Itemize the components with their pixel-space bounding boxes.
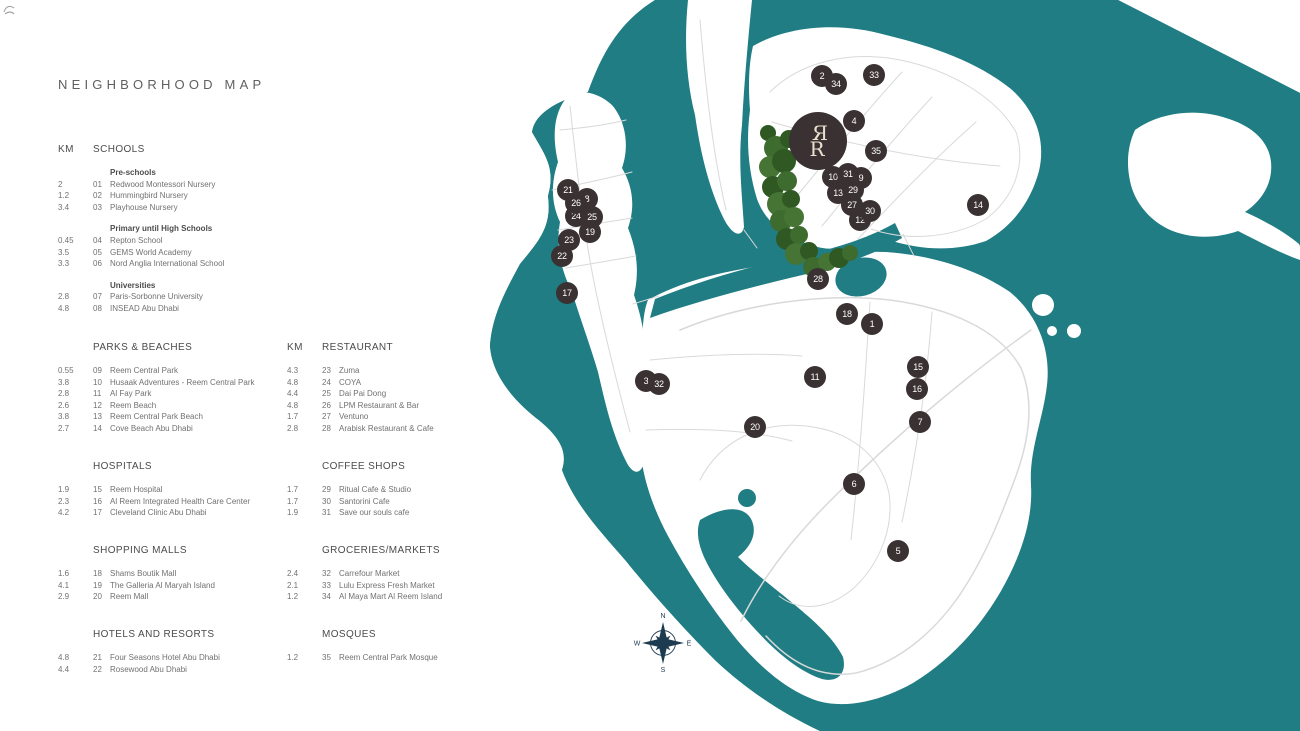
compass-star	[642, 622, 684, 664]
map-marker-14: 14	[967, 194, 989, 216]
lagoon-knob	[738, 489, 756, 507]
legend-item: 4.425Dai Pai Dong	[287, 388, 522, 400]
km-column-label	[58, 461, 93, 473]
legend-item: 1.729Ritual Cafe & Studio	[287, 484, 522, 496]
item-name: Al Reem Integrated Health Care Center	[110, 496, 293, 508]
item-km: 4.8	[287, 377, 322, 389]
compass-w: W	[634, 641, 641, 648]
section-header: HOSPITALS	[58, 461, 293, 473]
item-num: 26	[322, 400, 339, 412]
item-num: 24	[322, 377, 339, 389]
km-column-label: KM	[287, 342, 322, 354]
section-header: MOSQUES	[287, 629, 522, 641]
item-km: 4.3	[287, 365, 322, 377]
km-column-label	[58, 629, 93, 641]
item-name: Husaak Adventures - Reem Central Park	[110, 377, 293, 389]
item-num: 32	[322, 568, 339, 580]
map-marker-17: 17	[556, 282, 578, 304]
item-km: 3.8	[58, 411, 93, 423]
item-name: Cove Beach Abu Dhabi	[110, 423, 293, 435]
item-name: Save our souls cafe	[339, 507, 522, 519]
islet-2	[1067, 324, 1081, 338]
item-km: 1.7	[287, 496, 322, 508]
item-name: Al Maya Mart Al Reem Island	[339, 591, 522, 603]
item-num: 33	[322, 580, 339, 592]
project-logo: Я R	[789, 112, 847, 170]
legend-item: 4.826LPM Restaurant & Bar	[287, 400, 522, 412]
legend-section-hotels-and-resorts: HOTELS AND RESORTS4.821Four Seasons Hote…	[58, 629, 293, 675]
legend-group: 1.235Reem Central Park Mosque	[287, 652, 522, 664]
item-km: 1.2	[58, 190, 93, 202]
item-num: 35	[322, 652, 339, 664]
map-marker-31: 31	[837, 163, 859, 185]
item-num: 19	[93, 580, 110, 592]
legend-section-parks-beaches: PARKS & BEACHES0.5509Reem Central Park3.…	[58, 342, 293, 435]
item-name: Lulu Express Fresh Market	[339, 580, 522, 592]
legend-group: 1.618Shams Boutik Mall4.119The Galleria …	[58, 568, 293, 603]
item-name: Arabisk Restaurant & Cafe	[339, 423, 522, 435]
section-header: PARKS & BEACHES	[58, 342, 293, 354]
item-num: 05	[93, 247, 110, 259]
legend-item: 2.807Paris-Sorbonne University	[58, 291, 293, 303]
item-num: 09	[93, 365, 110, 377]
item-name: The Galleria Al Maryah Island	[110, 580, 293, 592]
item-name: GEMS World Academy	[110, 247, 293, 259]
item-name: Shams Boutik Mall	[110, 568, 293, 580]
item-num: 08	[93, 303, 110, 315]
item-name: Dai Pai Dong	[339, 388, 522, 400]
item-name: INSEAD Abu Dhabi	[110, 303, 293, 315]
map-marker-5: 5	[887, 540, 909, 562]
item-km: 4.2	[58, 507, 93, 519]
legend-subgroup-label: Universities	[110, 280, 293, 292]
section-title: HOTELS AND RESORTS	[93, 629, 293, 641]
map-marker-4: 4	[843, 110, 865, 132]
legend-item: 2.133Lulu Express Fresh Market	[287, 580, 522, 592]
legend-item: 4.808INSEAD Abu Dhabi	[58, 303, 293, 315]
section-title: RESTAURANT	[322, 342, 522, 354]
corner-mark	[2, 2, 16, 16]
item-num: 02	[93, 190, 110, 202]
legend-item: 4.824COYA	[287, 377, 522, 389]
map-marker-7: 7	[909, 411, 931, 433]
item-name: Reem Central Park Mosque	[339, 652, 522, 664]
item-km: 4.8	[287, 400, 322, 412]
legend-item: 1.727Ventuno	[287, 411, 522, 423]
legend-section-restaurant: KMRESTAURANT4.323Zuma4.824COYA4.425Dai P…	[287, 342, 522, 435]
item-num: 03	[93, 202, 110, 214]
km-column-label	[287, 629, 322, 641]
item-name: Hummingbird Nursery	[110, 190, 293, 202]
item-name: Al Fay Park	[110, 388, 293, 400]
item-num: 06	[93, 258, 110, 270]
item-name: Nord Anglia International School	[110, 258, 293, 270]
item-name: Repton School	[110, 235, 293, 247]
item-num: 01	[93, 179, 110, 191]
item-num: 34	[322, 591, 339, 603]
map-marker-6: 6	[843, 473, 865, 495]
section-title: SCHOOLS	[93, 144, 293, 156]
legend-item: 201Redwood Montessori Nursery	[58, 179, 293, 191]
item-num: 12	[93, 400, 110, 412]
item-km: 3.5	[58, 247, 93, 259]
map-marker-26: 26	[565, 192, 587, 214]
item-num: 13	[93, 411, 110, 423]
item-km: 4.8	[58, 303, 93, 315]
item-name: LPM Restaurant & Bar	[339, 400, 522, 412]
item-km: 3.3	[58, 258, 93, 270]
section-header: COFFEE SHOPS	[287, 461, 522, 473]
item-num: 27	[322, 411, 339, 423]
map-marker-34: 34	[825, 73, 847, 95]
legend-group: 0.5509Reem Central Park3.810Husaak Adven…	[58, 365, 293, 435]
legend-group: Pre-schools201Redwood Montessori Nursery…	[58, 167, 293, 213]
item-km: 0.45	[58, 235, 93, 247]
map-marker-32: 32	[648, 373, 670, 395]
section-title: PARKS & BEACHES	[93, 342, 293, 354]
legend-item: 3.810Husaak Adventures - Reem Central Pa…	[58, 377, 293, 389]
section-header: KMSCHOOLS	[58, 144, 293, 156]
legend-subgroup-label: Pre-schools	[110, 167, 293, 179]
item-name: Playhouse Nursery	[110, 202, 293, 214]
legend-item: 0.5509Reem Central Park	[58, 365, 293, 377]
item-km: 2.8	[58, 291, 93, 303]
item-km: 2.8	[58, 388, 93, 400]
item-km: 3.4	[58, 202, 93, 214]
item-num: 15	[93, 484, 110, 496]
legend-group: Primary until High Schools0.4504Repton S…	[58, 223, 293, 269]
legend-item: 2.920Reem Mall	[58, 591, 293, 603]
map-marker-28: 28	[807, 268, 829, 290]
compass-rose: N E S W	[631, 611, 695, 675]
page-title: NEIGHBORHOOD MAP	[58, 77, 265, 92]
legend-item: 4.821Four Seasons Hotel Abu Dhabi	[58, 652, 293, 664]
item-km: 1.2	[287, 652, 322, 664]
section-title: COFFEE SHOPS	[322, 461, 522, 473]
item-name: Zuma	[339, 365, 522, 377]
legend-item: 4.323Zuma	[287, 365, 522, 377]
legend-group: 1.915Reem Hospital2.316Al Reem Integrate…	[58, 484, 293, 519]
item-km: 1.9	[287, 507, 322, 519]
item-km: 1.9	[58, 484, 93, 496]
item-name: Santorini Cafe	[339, 496, 522, 508]
item-km: 2.3	[58, 496, 93, 508]
legend-item: 2.714Cove Beach Abu Dhabi	[58, 423, 293, 435]
item-km: 2.4	[287, 568, 322, 580]
legend-item: 1.730Santorini Cafe	[287, 496, 522, 508]
section-header: HOTELS AND RESORTS	[58, 629, 293, 641]
km-column-label: KM	[58, 144, 93, 156]
legend-group: 4.821Four Seasons Hotel Abu Dhabi4.422Ro…	[58, 652, 293, 675]
item-name: Paris-Sorbonne University	[110, 291, 293, 303]
section-title: SHOPPING MALLS	[93, 545, 293, 557]
legend-subgroup-label: Primary until High Schools	[110, 223, 293, 235]
legend-section-schools: KMSCHOOLSPre-schools201Redwood Montessor…	[58, 144, 293, 315]
legend-item: 2.828Arabisk Restaurant & Cafe	[287, 423, 522, 435]
km-column-label	[58, 342, 93, 354]
legend-section-hospitals: HOSPITALS1.915Reem Hospital2.316Al Reem …	[58, 461, 293, 519]
legend-item: 4.217Cleveland Clinic Abu Dhabi	[58, 507, 293, 519]
item-num: 31	[322, 507, 339, 519]
legend-item: 3.505GEMS World Academy	[58, 247, 293, 259]
legend-item: 1.234Al Maya Mart Al Reem Island	[287, 591, 522, 603]
item-name: Four Seasons Hotel Abu Dhabi	[110, 652, 293, 664]
item-km: 1.7	[287, 484, 322, 496]
item-num: 25	[322, 388, 339, 400]
item-num: 20	[93, 591, 110, 603]
item-km: 1.2	[287, 591, 322, 603]
section-header: KMRESTAURANT	[287, 342, 522, 354]
legend-item: 2.316Al Reem Integrated Health Care Cent…	[58, 496, 293, 508]
section-title: HOSPITALS	[93, 461, 293, 473]
legend-item: 1.202Hummingbird Nursery	[58, 190, 293, 202]
item-km: 2.9	[58, 591, 93, 603]
item-name: Cleveland Clinic Abu Dhabi	[110, 507, 293, 519]
legend-item: 1.931Save our souls cafe	[287, 507, 522, 519]
islet-1	[1032, 294, 1054, 316]
islet-3	[1047, 326, 1057, 336]
item-km: 3.8	[58, 377, 93, 389]
item-km: 2	[58, 179, 93, 191]
legend-item: 0.4504Repton School	[58, 235, 293, 247]
item-num: 17	[93, 507, 110, 519]
legend-item: 4.422Rosewood Abu Dhabi	[58, 664, 293, 676]
section-header: GROCERIES/MARKETS	[287, 545, 522, 557]
item-name: Rosewood Abu Dhabi	[110, 664, 293, 676]
legend-item: 2.432Carrefour Market	[287, 568, 522, 580]
compass-s: S	[661, 667, 666, 674]
item-km: 2.6	[58, 400, 93, 412]
item-num: 22	[93, 664, 110, 676]
km-column-label	[58, 545, 93, 557]
item-name: Reem Central Park Beach	[110, 411, 293, 423]
legend-item: 3.403Playhouse Nursery	[58, 202, 293, 214]
legend-group: 2.432Carrefour Market2.133Lulu Express F…	[287, 568, 522, 603]
section-title: GROCERIES/MARKETS	[322, 545, 522, 557]
section-header: SHOPPING MALLS	[58, 545, 293, 557]
item-km: 2.7	[58, 423, 93, 435]
item-km: 4.8	[58, 652, 93, 664]
map-marker-11: 11	[804, 366, 826, 388]
map-marker-35: 35	[865, 140, 887, 162]
legend-group: Universities2.807Paris-Sorbonne Universi…	[58, 280, 293, 315]
map-marker-1: 1	[861, 313, 883, 335]
item-num: 14	[93, 423, 110, 435]
item-num: 28	[322, 423, 339, 435]
item-name: Reem Central Park	[110, 365, 293, 377]
compass-e: E	[687, 641, 692, 648]
map-marker-33: 33	[863, 64, 885, 86]
item-name: Ventuno	[339, 411, 522, 423]
item-km: 4.4	[58, 664, 93, 676]
legend-section-coffee-shops: COFFEE SHOPS1.729Ritual Cafe & Studio1.7…	[287, 461, 522, 519]
legend-item: 3.306Nord Anglia International School	[58, 258, 293, 270]
item-num: 30	[322, 496, 339, 508]
item-name: COYA	[339, 377, 522, 389]
legend-item: 2.811Al Fay Park	[58, 388, 293, 400]
item-name: Ritual Cafe & Studio	[339, 484, 522, 496]
item-name: Reem Beach	[110, 400, 293, 412]
legend-section-shopping-malls: SHOPPING MALLS1.618Shams Boutik Mall4.11…	[58, 545, 293, 603]
legend-section-mosques: MOSQUES1.235Reem Central Park Mosque	[287, 629, 522, 664]
legend-item: 1.915Reem Hospital	[58, 484, 293, 496]
item-num: 23	[322, 365, 339, 377]
logo-monogram-bottom: R	[809, 141, 824, 157]
map-marker-18: 18	[836, 303, 858, 325]
section-title: MOSQUES	[322, 629, 522, 641]
map-marker-16: 16	[906, 378, 928, 400]
map-marker-15: 15	[907, 356, 929, 378]
item-num: 11	[93, 388, 110, 400]
item-num: 16	[93, 496, 110, 508]
legend-item: 1.618Shams Boutik Mall	[58, 568, 293, 580]
legend-item: 1.235Reem Central Park Mosque	[287, 652, 522, 664]
km-column-label	[287, 461, 322, 473]
map-marker-30: 30	[859, 200, 881, 222]
item-num: 07	[93, 291, 110, 303]
map-marker-23: 23	[558, 229, 580, 251]
compass-n: N	[660, 613, 665, 620]
legend-section-groceries-markets: GROCERIES/MARKETS2.432Carrefour Market2.…	[287, 545, 522, 603]
item-km: 4.4	[287, 388, 322, 400]
legend-group: 4.323Zuma4.824COYA4.425Dai Pai Dong4.826…	[287, 365, 522, 435]
item-km: 2.1	[287, 580, 322, 592]
item-km: 0.55	[58, 365, 93, 377]
legend-group: 1.729Ritual Cafe & Studio1.730Santorini …	[287, 484, 522, 519]
item-num: 10	[93, 377, 110, 389]
legend-item: 3.813Reem Central Park Beach	[58, 411, 293, 423]
item-num: 29	[322, 484, 339, 496]
item-name: Carrefour Market	[339, 568, 522, 580]
map-marker-20: 20	[744, 416, 766, 438]
item-km: 1.7	[287, 411, 322, 423]
item-name: Redwood Montessori Nursery	[110, 179, 293, 191]
item-name: Reem Mall	[110, 591, 293, 603]
item-km: 2.8	[287, 423, 322, 435]
item-km: 1.6	[58, 568, 93, 580]
km-column-label	[287, 545, 322, 557]
item-num: 04	[93, 235, 110, 247]
item-km: 4.1	[58, 580, 93, 592]
item-name: Reem Hospital	[110, 484, 293, 496]
legend-item: 2.612Reem Beach	[58, 400, 293, 412]
item-num: 21	[93, 652, 110, 664]
legend-item: 4.119The Galleria Al Maryah Island	[58, 580, 293, 592]
item-num: 18	[93, 568, 110, 580]
